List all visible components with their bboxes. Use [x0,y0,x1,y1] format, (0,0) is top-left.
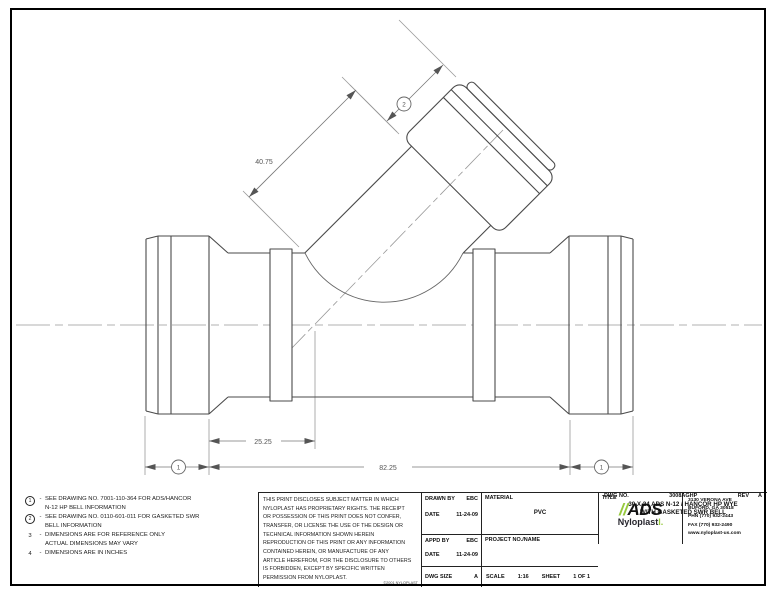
dim-bell-to-center-text: 25.25 [254,439,272,446]
scale-label: SCALE [486,574,505,580]
material-cell: MATERIAL PVC [481,493,598,534]
appd-date-label: DATE [425,552,440,558]
address-line: FAX (770) 932-2490 [688,522,767,530]
note-row: 4 - DIMENSIONS ARE IN INCHES [24,549,256,559]
branch-bell-bands [443,90,547,194]
note-dash: - [36,531,45,540]
note-2-bubble: 2 [25,514,35,524]
note-3-line1: DIMENSIONS ARE FOR REFERENCE ONLY [45,531,165,540]
drawn-by-value: EBC [466,496,478,502]
appd-by-value: EBC [466,538,478,544]
centerlines [16,130,762,350]
dim-line-branch-length [249,90,356,197]
note-row: 2 - SEE DRAWING NO. 0110-601-011 FOR GAS… [24,513,256,531]
scale-sheet-cell: SCALE 1:16 SHEET 1 OF 1 [481,566,598,587]
drawn-by-cell: DRAWN BY EBC DATE 11-24-09 [421,493,481,534]
left-coupling-band [270,249,292,401]
branch-outline [296,75,562,341]
dwg-no-cell: DWG NO. 3008AGHP REV A [598,493,767,499]
material-value: PVC [482,510,598,516]
note-1-bubble: 1 [25,496,35,506]
dimension-lines [145,65,633,467]
branch-centerline [290,130,503,350]
note-1-line2: N-12 HP BELL INFORMATION [45,504,191,513]
project-label: PROJECT NO./NAME [482,535,598,543]
sheet-label: SHEET [542,574,560,580]
note-2-line2: BELL INFORMATION [45,522,199,531]
note-1-line1: SEE DRAWING NO. 7001-110-364 FOR ADS/HAN… [45,495,191,504]
nyloplast-logo-text: Nyloplast [618,517,659,527]
note-dash: - [36,495,45,504]
scale-value: 1:16 [518,574,529,580]
drawing-sheet: 40.75 25.25 82.25 2 1 1 1 - SEE DRAWING … [0,0,776,600]
branch-bell-mouth [465,80,556,171]
drawn-by-label: DRAWN BY [425,496,455,502]
dim-line-branch-bell [387,65,443,121]
callout-1-right-text: 1 [600,465,604,472]
notes-list: 1 - SEE DRAWING NO. 7001-110-364 FOR ADS… [24,495,256,559]
dwg-no-label: DWG NO. [604,493,629,499]
dim-laying-length-text: 82.25 [379,465,397,472]
project-cell: PROJECT NO./NAME [481,534,598,566]
note-3-line2: ACTUAL DIMENSIONS MAY VARY [45,540,165,549]
dwg-no-value: 3008AGHP [629,493,738,499]
note-3-number: 3 [24,531,36,541]
note-4-number: 4 [24,549,36,559]
note-row: 1 - SEE DRAWING NO. 7001-110-364 FOR ADS… [24,495,256,513]
address-website: www.nyloplast-us.com [688,530,767,538]
rev-label: REV [738,493,749,499]
note-dash: - [36,513,45,522]
note-4-line1: DIMENSIONS ARE IN INCHES [45,549,127,558]
dwg-size-value: A [474,574,478,580]
rev-value: A [758,493,762,499]
nyloplast-logo-mark-icon: l. [658,517,663,527]
proprietary-notice: THIS PRINT DISCLOSES SUBJECT MATTER IN W… [259,493,421,587]
drawn-date-value: 11-24-09 [456,512,478,518]
note-row: 3 - DIMENSIONS ARE FOR REFERENCE ONLY AC… [24,531,256,549]
wye-crotch-arc [305,253,463,302]
right-coupling-band [473,249,495,401]
drawing-title-line2: WITH GASKETED SWR BELL [599,509,767,517]
extension-lines [145,20,633,475]
title-block: THIS PRINT DISCLOSES SUBJECT MATTER IN W… [258,492,767,587]
note-2-line1: SEE DRAWING NO. 0110-601-011 FOR GASKETE… [45,513,199,522]
copyright-note: ©2001 NYLOPLAST [383,581,418,585]
drawing-title-line1: 30 X 24 ADS N-12 / HANCOR HP WYE [599,501,767,509]
drawn-date-label: DATE [425,512,440,518]
callout-2-text: 2 [402,102,406,109]
branch-bell-body [403,81,556,234]
appd-by-label: APPD BY [425,538,449,544]
material-label: MATERIAL [482,493,598,501]
callout-bubbles [172,97,609,474]
dim-branch-length-text: 40.75 [255,159,273,166]
note-dash: - [36,549,45,558]
appd-date-value: 11-24-09 [456,552,478,558]
dwg-size-label: DWG SIZE [425,574,452,580]
appd-by-cell: APPD BY EBC DATE 11-24-09 [421,534,481,566]
callout-1-left-text: 1 [177,465,181,472]
sheet-value: 1 OF 1 [573,574,590,580]
dwg-size-cell: DWG SIZE A [421,566,481,587]
